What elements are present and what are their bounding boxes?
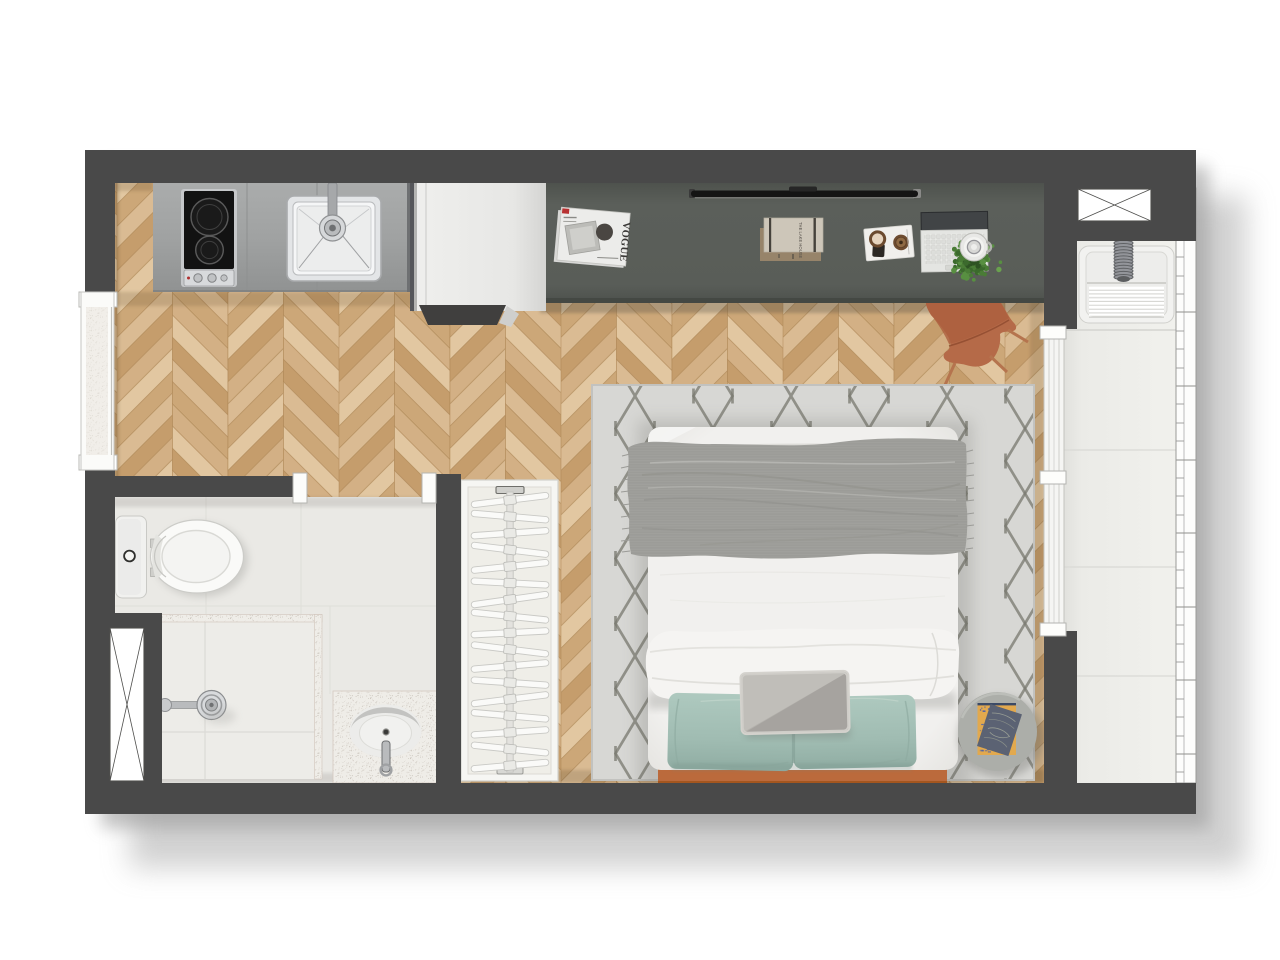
svg-text:THE LAKE HOUSE: THE LAKE HOUSE (798, 222, 803, 259)
